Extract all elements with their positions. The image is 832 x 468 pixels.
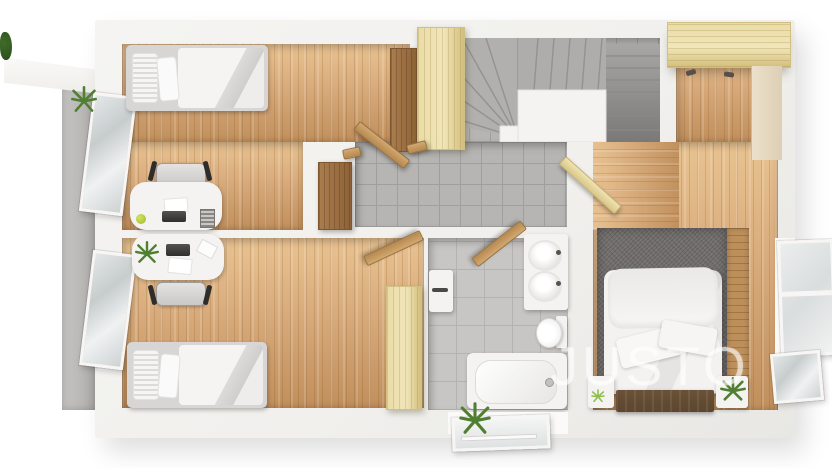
open-window-right-bottom <box>770 350 824 404</box>
sink-basin-2 <box>528 271 562 302</box>
faucet-2 <box>556 281 561 286</box>
laptop-lower <box>166 244 190 256</box>
balcony-plant <box>70 82 98 116</box>
double-sink-vanity <box>524 234 568 310</box>
window-mid-rail <box>782 290 832 297</box>
duvet-upper <box>178 48 264 108</box>
faucet-1 <box>556 250 561 255</box>
open-window-right-top <box>777 239 832 357</box>
hallway-closet <box>318 162 352 230</box>
single-bed-lower <box>127 342 267 408</box>
pillow-upper-1 <box>132 53 158 103</box>
pillow-lower-1 <box>133 350 159 400</box>
master-wardrobe-side-panel <box>751 66 782 160</box>
towel-bar <box>432 288 448 292</box>
towel-rail <box>429 270 453 312</box>
justo-watermark: JUSTO <box>545 334 755 398</box>
laptop-upper <box>162 211 186 222</box>
office-chair-lower <box>156 282 206 306</box>
left-edge-plant <box>0 32 12 60</box>
bottom-plant <box>458 398 492 438</box>
pale-wardrobe-lower <box>386 286 422 410</box>
desk-cards <box>196 239 218 260</box>
pale-wardrobe-upper <box>417 27 465 150</box>
master-wardrobe <box>667 22 791 68</box>
pillow-upper-2 <box>156 56 180 102</box>
desk-plant <box>134 240 160 266</box>
floor-plan-scene: JUSTO <box>0 0 832 468</box>
sink-basin-1 <box>528 240 562 271</box>
tennis-ball-cup <box>136 214 146 224</box>
pillow-lower-2 <box>157 353 181 399</box>
paper-sheet-lower <box>167 257 193 275</box>
single-bed-upper <box>126 45 268 111</box>
duvet-lower <box>179 345 263 405</box>
master-bedroom-landing-planks <box>593 142 679 230</box>
winder-staircase <box>448 38 660 142</box>
tall-brown-cabinet-upper <box>390 48 418 152</box>
desk-upper <box>130 182 222 230</box>
printer-box <box>200 209 215 228</box>
